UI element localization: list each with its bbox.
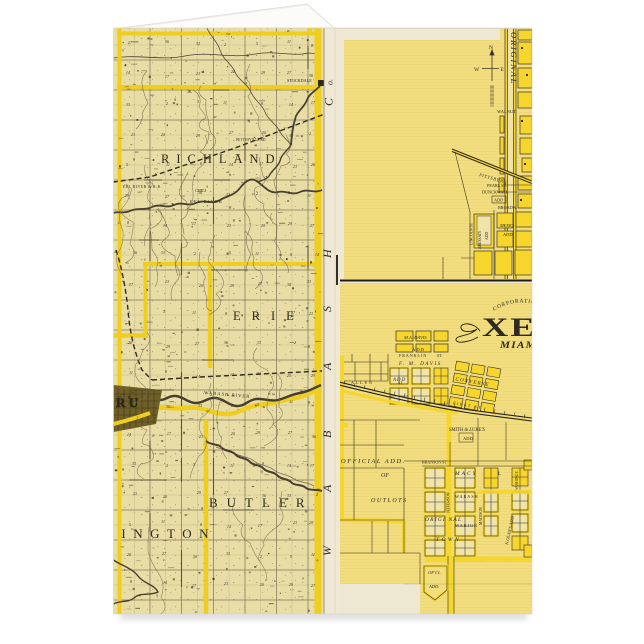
svg-text:11: 11 [255,251,259,256]
svg-text:C: C [322,97,336,106]
svg-text:B: B [320,430,334,438]
svg-text:23: 23 [165,279,169,284]
svg-text:23: 23 [293,520,297,525]
svg-text:OF: OF [381,473,389,479]
svg-text:23: 23 [293,164,297,169]
svg-text:33: 33 [257,340,261,345]
svg-text:14: 14 [163,580,167,585]
svg-text:ERIE: ERIE [233,309,305,323]
svg-text:14: 14 [126,70,130,75]
svg-text:14: 14 [227,524,231,529]
svg-text:23: 23 [227,223,231,228]
svg-text:11: 11 [230,463,234,468]
svg-text:ADD.: ADD. [428,584,439,589]
svg-text:33: 33 [126,102,130,107]
svg-text:RICHLAND: RICHLAND [161,152,282,166]
svg-text:HINGTON: HINGTON [105,526,216,541]
svg-text:BRESSATS: BRESSATS [477,231,482,249]
svg-text:N: N [489,45,493,51]
svg-text:L: L [498,472,501,477]
svg-text:A: A [320,484,334,493]
svg-text:33: 33 [226,192,230,197]
svg-text:2: 2 [231,403,233,408]
svg-text:14: 14 [315,252,319,257]
svg-text:WALNUT: WALNUT [497,109,516,114]
svg-text:23: 23 [131,132,135,137]
svg-text:5: 5 [163,309,165,314]
svg-text:33: 33 [226,551,230,556]
svg-text:ALLEN: ALLEN [351,380,374,385]
svg-text:A: A [320,362,334,371]
svg-text:SMITH & LUKE'S: SMITH & LUKE'S [449,428,486,433]
svg-text:2: 2 [309,131,311,136]
svg-text:14: 14 [287,463,291,468]
svg-text:33: 33 [132,461,136,466]
svg-text:ADD: ADD [503,232,513,237]
svg-text:M.A. DAVIS: M.A. DAVIS [403,335,427,340]
svg-text:WASHINGT.: WASHINGT. [515,470,519,491]
svg-text:OF'CL: OF'CL [428,570,441,575]
svg-text:PEARL ST.: PEARL ST. [487,183,507,188]
svg-text:F. M. DAVIS: F. M. DAVIS [398,362,442,367]
svg-text:W: W [320,545,334,556]
svg-text:TOWN: TOWN [436,537,461,543]
svg-text:5: 5 [288,190,290,195]
svg-text:11: 11 [129,370,133,375]
svg-text:5: 5 [197,99,199,104]
svg-text:5: 5 [257,402,259,407]
svg-text:33: 33 [198,403,202,408]
svg-text:ORIGINAL: ORIGINAL [509,32,519,85]
svg-text:33: 33 [161,250,165,255]
svg-text:PETTYSVILLE RD: PETTYSVILLE RD [236,138,266,142]
svg-text:14: 14 [289,102,293,107]
svg-text:OFFICIAL ADD.: OFFICIAL ADD. [341,458,406,465]
svg-text:11: 11 [307,193,311,198]
svg-text:ADD: ADD [485,232,489,240]
svg-text:BROADW.: BROADW. [498,205,517,210]
svg-text:33: 33 [196,41,200,46]
svg-text:MACY: MACY [454,471,478,477]
svg-text:H: H [320,248,334,259]
svg-text:14: 14 [127,432,131,437]
svg-text:2: 2 [128,310,130,315]
svg-text:23: 23 [224,581,228,586]
svg-text:11: 11 [192,310,196,315]
svg-text:OUTLOTS: OUTLOTS [371,498,408,504]
svg-text:33: 33 [307,279,311,284]
svg-text:FRANKLIN: FRANKLIN [399,353,427,358]
svg-text:11: 11 [289,399,293,404]
svg-text:WABASH: WABASH [455,494,479,499]
svg-text:23: 23 [133,491,137,496]
svg-text:2: 2 [316,492,318,497]
svg-text:JEFFERSON: JEFFERSON [447,492,451,513]
svg-text:5: 5 [256,41,258,46]
svg-text:14: 14 [196,374,200,379]
svg-text:MADISON: MADISON [479,507,483,525]
svg-text:W: W [474,67,480,73]
svg-text:ADD: ADD [494,198,503,203]
svg-text:STOCKDALE: STOCKDALE [287,78,312,83]
svg-text:ST.: ST. [437,353,442,358]
svg-text:23: 23 [196,71,200,76]
svg-text:o.: o. [326,79,335,85]
svg-text:MEEKS: MEEKS [499,223,515,228]
svg-text:2: 2 [294,340,296,345]
svg-text:23: 23 [257,371,261,376]
svg-text:2: 2 [260,554,262,559]
svg-text:BUTLER: BUTLER [209,495,314,510]
svg-text:ADD.: ADD. [463,436,474,441]
svg-text:2: 2 [166,463,168,468]
svg-text:CHILI: CHILI [195,188,207,193]
svg-text:23: 23 [309,311,313,316]
svg-text:BRANSON ST: BRANSON ST [422,460,447,465]
svg-text:11: 11 [161,519,165,524]
svg-text:11: 11 [223,100,227,105]
svg-text:MARION: MARION [455,523,478,528]
svg-text:ADD: ADD [412,347,425,352]
svg-text:2: 2 [256,191,258,196]
svg-text:2: 2 [224,42,226,47]
svg-text:33: 33 [289,133,293,138]
svg-text:5: 5 [229,250,231,255]
svg-text:EEL RIVER: EEL RIVER [190,199,223,204]
svg-text:11: 11 [311,552,315,557]
svg-text:ST.: ST. [398,381,404,386]
svg-text:2: 2 [194,251,196,256]
svg-text:5: 5 [126,162,128,167]
svg-text:EEL RIVER & R.R.: EEL RIVER & R.R. [123,185,162,189]
svg-text:2: 2 [166,101,168,106]
svg-text:5: 5 [290,554,292,559]
svg-text:S: S [320,306,334,312]
svg-text:11: 11 [287,39,291,44]
svg-text:XE: XE [482,313,537,342]
